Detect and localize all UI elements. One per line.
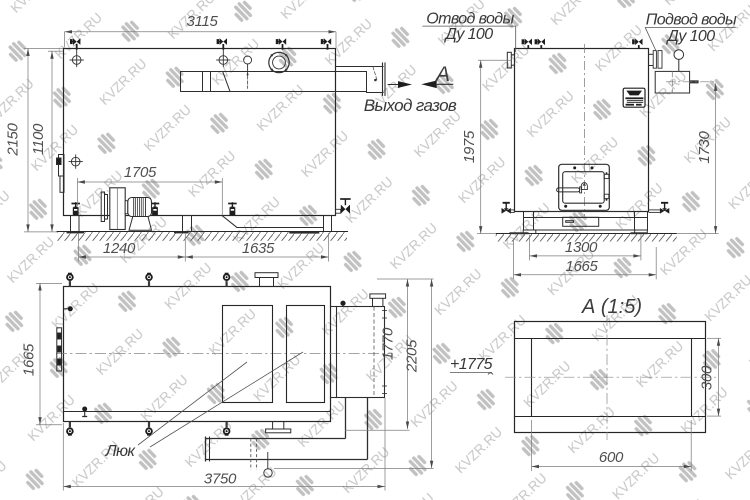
svg-text:А (1:5): А (1:5) xyxy=(581,296,642,318)
svg-text:1770: 1770 xyxy=(380,327,397,360)
svg-text:600: 600 xyxy=(599,449,624,466)
svg-text:Выход газов: Выход газов xyxy=(364,96,457,115)
svg-text:1635: 1635 xyxy=(242,240,275,257)
svg-text:1975: 1975 xyxy=(461,130,478,163)
svg-text:1665: 1665 xyxy=(565,258,598,275)
svg-text:Подвод воды: Подвод воды xyxy=(646,12,737,29)
svg-text:2205: 2205 xyxy=(404,339,421,373)
svg-text:1240: 1240 xyxy=(103,240,136,257)
svg-text:А: А xyxy=(434,63,450,86)
svg-text:+1775: +1775 xyxy=(450,356,493,373)
svg-text:Ду 100: Ду 100 xyxy=(666,28,716,45)
svg-text:3750: 3750 xyxy=(204,471,237,488)
svg-text:Люк: Люк xyxy=(105,443,137,460)
svg-text:1730: 1730 xyxy=(696,130,713,163)
svg-text:300: 300 xyxy=(699,365,716,390)
svg-text:1100: 1100 xyxy=(30,123,47,155)
svg-text:3115: 3115 xyxy=(186,13,218,30)
svg-text:2150: 2150 xyxy=(5,122,22,156)
svg-text:Ду 100: Ду 100 xyxy=(444,26,494,43)
svg-text:1300: 1300 xyxy=(565,239,598,256)
svg-text:Отвод воды: Отвод воды xyxy=(426,11,514,28)
svg-text:1705: 1705 xyxy=(124,164,157,181)
svg-text:1665: 1665 xyxy=(21,343,38,376)
